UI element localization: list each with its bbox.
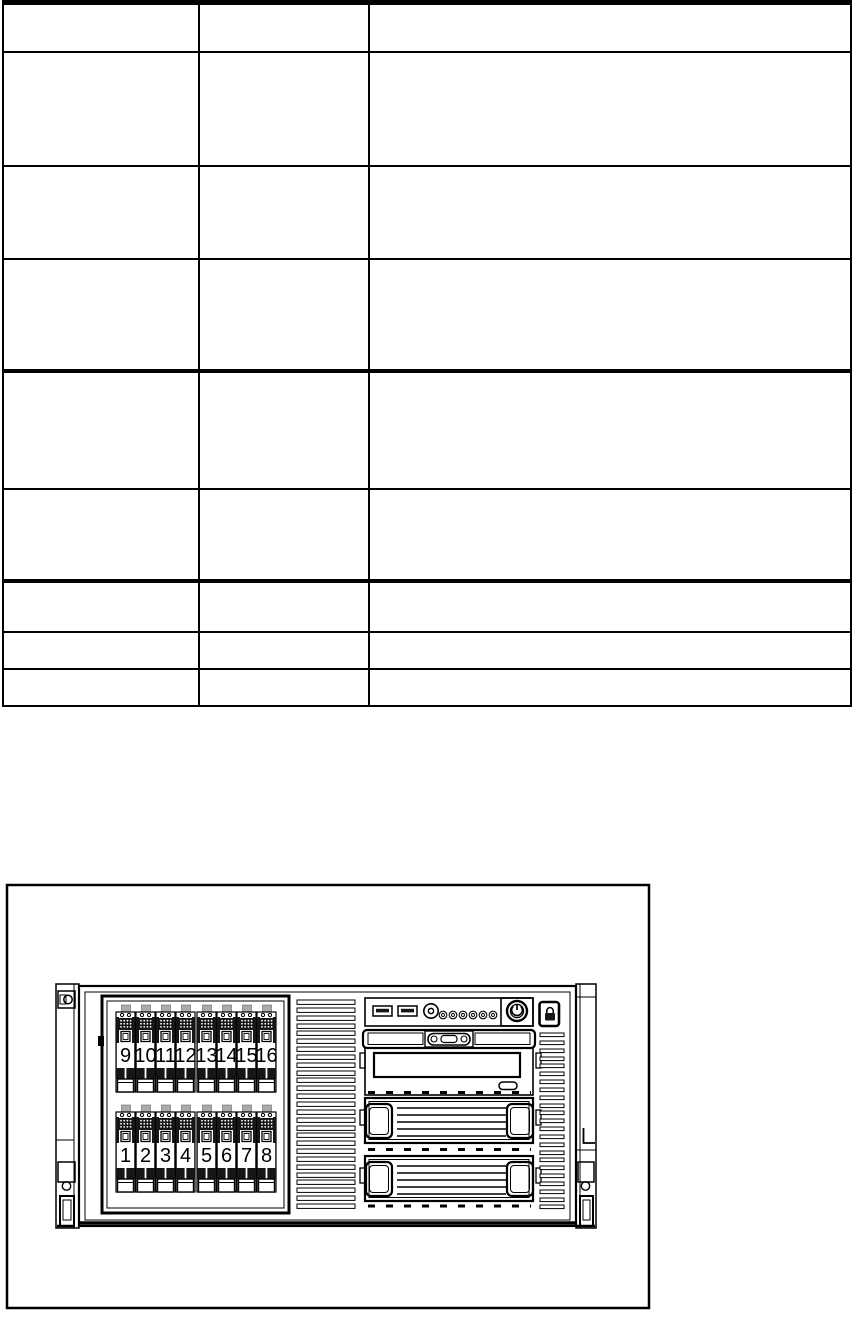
vga-connector-panel xyxy=(363,1030,535,1048)
table-cell xyxy=(3,166,199,259)
device-bay-lower xyxy=(360,1156,541,1206)
table-cell xyxy=(199,632,369,669)
table-cell xyxy=(369,3,851,53)
bay-number: 12 xyxy=(174,1045,196,1067)
table-cell xyxy=(3,3,199,53)
table-cell xyxy=(3,52,199,166)
hot-swap-drive-cage: 9 10 11 12 13 14 15 16 1 2 3 4 5 6 7 xyxy=(98,996,289,1213)
table-cell xyxy=(199,166,369,259)
table-cell xyxy=(369,669,851,706)
table-cell xyxy=(369,489,851,581)
ear-screw-hole xyxy=(581,1182,589,1190)
bay-number: 15 xyxy=(235,1045,257,1067)
table-cell xyxy=(3,581,199,632)
bay-number: 14 xyxy=(215,1045,237,1067)
cage-release-tab xyxy=(98,1036,104,1046)
bay-number: 9 xyxy=(120,1045,131,1067)
right-rack-ear xyxy=(576,984,596,1228)
table-cell xyxy=(199,669,369,706)
bay-number: 10 xyxy=(134,1045,156,1067)
table-cell xyxy=(199,259,369,371)
table-cell xyxy=(369,52,851,166)
bay-number: 16 xyxy=(255,1045,277,1067)
usb-port-icon xyxy=(398,1006,417,1016)
table-row xyxy=(3,632,851,669)
left-rack-ear xyxy=(56,984,79,1228)
document-table xyxy=(2,0,852,707)
table-cell xyxy=(199,371,369,489)
vga-connector-icon xyxy=(428,1034,470,1046)
bay-number: 11 xyxy=(155,1045,176,1067)
table-cell xyxy=(199,489,369,581)
middle-vent-grille xyxy=(297,1000,355,1208)
device-bay-upper xyxy=(360,1098,541,1150)
lock-button xyxy=(540,1002,560,1026)
bay-number: 5 xyxy=(201,1145,212,1167)
table-cell xyxy=(369,259,851,371)
table-cell xyxy=(369,371,851,489)
bay-number: 2 xyxy=(140,1145,151,1167)
table-row xyxy=(3,371,851,489)
table-cell xyxy=(199,52,369,166)
table-cell xyxy=(3,371,199,489)
table-cell xyxy=(3,632,199,669)
power-button-icon xyxy=(507,1001,527,1021)
table-cell xyxy=(3,669,199,706)
ear-screw-hole xyxy=(62,1182,70,1190)
bay-number: 4 xyxy=(180,1145,191,1167)
bay-number: 13 xyxy=(195,1045,217,1067)
bay-number: 1 xyxy=(120,1145,131,1167)
usb-port-icon xyxy=(373,1006,392,1016)
table-row xyxy=(3,489,851,581)
table-cell xyxy=(199,3,369,53)
eject-button xyxy=(499,1082,517,1090)
table-cell xyxy=(199,581,369,632)
status-led-icons xyxy=(439,1011,497,1019)
table-row xyxy=(3,52,851,166)
table-cell xyxy=(3,489,199,581)
table-cell xyxy=(3,259,199,371)
control-panel xyxy=(365,998,533,1026)
table-cell xyxy=(369,581,851,632)
table-cell xyxy=(369,632,851,669)
padlock-icon xyxy=(545,1008,555,1021)
bay-number: 8 xyxy=(261,1145,272,1167)
table-row xyxy=(3,166,851,259)
round-connector-icon xyxy=(424,1004,438,1018)
table-row xyxy=(3,669,851,706)
drive-tray-row-top: 9 10 11 12 13 14 15 16 xyxy=(116,1012,278,1092)
server-front-view-figure: 9 10 11 12 13 14 15 16 1 2 3 4 5 6 7 xyxy=(0,850,852,1319)
bay-number: 6 xyxy=(221,1145,232,1167)
optical-bay-door xyxy=(374,1053,520,1077)
table-row xyxy=(3,3,851,53)
table-cell xyxy=(369,166,851,259)
optical-drive-bay xyxy=(360,1048,541,1095)
table-row xyxy=(3,581,851,632)
bay-number: 7 xyxy=(241,1145,252,1167)
table-row xyxy=(3,259,851,371)
drive-tray-row-bottom: 1 2 3 4 5 6 7 8 xyxy=(116,1112,276,1192)
right-vent-grille xyxy=(540,1033,564,1209)
bay-number: 3 xyxy=(160,1145,171,1167)
